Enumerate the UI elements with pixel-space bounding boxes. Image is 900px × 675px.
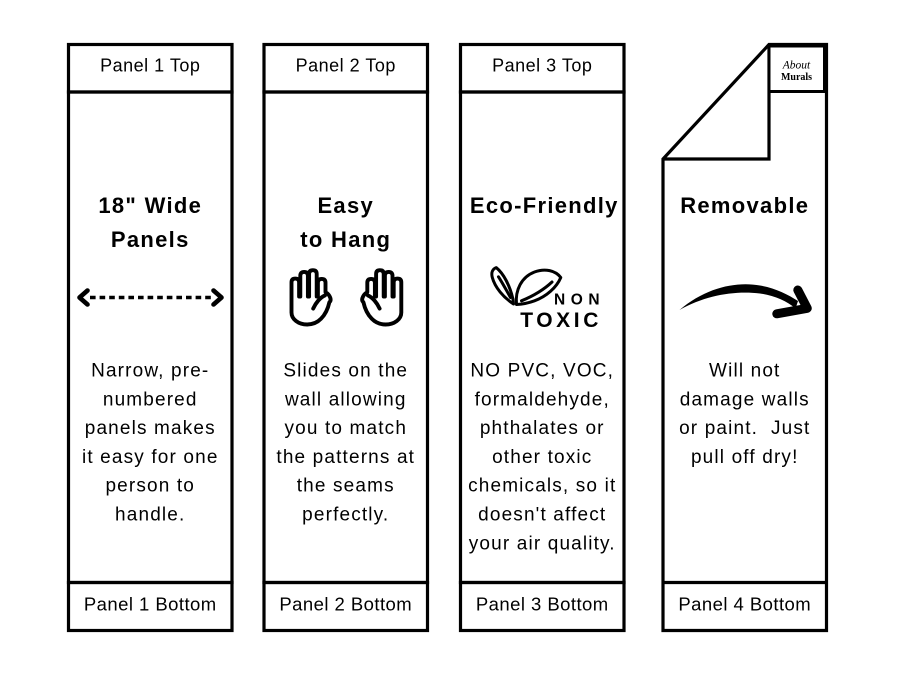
svg-text:Panels: Panels	[111, 227, 190, 252]
svg-text:Panel 1 Top: Panel 1 Top	[100, 56, 200, 76]
svg-text:Panel 3 Bottom: Panel 3 Bottom	[476, 594, 609, 615]
svg-text:you to match: you to match	[284, 418, 407, 439]
svg-text:the patterns at: the patterns at	[276, 447, 415, 468]
svg-text:Panel 1 Bottom: Panel 1 Bottom	[84, 594, 217, 615]
svg-text:perfectly.: perfectly.	[302, 505, 389, 526]
svg-text:Removable: Removable	[680, 193, 809, 218]
svg-text:TOXIC: TOXIC	[520, 309, 602, 332]
svg-text:Eco-Friendly: Eco-Friendly	[470, 193, 619, 218]
svg-text:handle.: handle.	[115, 505, 185, 526]
svg-text:Panel 3 Top: Panel 3 Top	[492, 56, 592, 76]
svg-text:NON: NON	[554, 292, 605, 309]
svg-text:damage walls: damage walls	[680, 389, 810, 410]
svg-text:Slides on the: Slides on the	[283, 361, 408, 382]
svg-text:numbered: numbered	[103, 389, 198, 410]
svg-text:your air quality.: your air quality.	[469, 533, 616, 554]
svg-text:panels makes: panels makes	[85, 418, 216, 439]
svg-text:18" Wide: 18" Wide	[98, 193, 202, 218]
svg-text:About: About	[782, 60, 811, 72]
svg-text:phthalates or: phthalates or	[480, 418, 605, 439]
svg-text:or paint. Just: or paint. Just	[679, 418, 810, 439]
svg-text:Panel 2 Bottom: Panel 2 Bottom	[279, 594, 412, 615]
svg-text:other toxic: other toxic	[492, 447, 592, 468]
svg-text:NO PVC, VOC,: NO PVC, VOC,	[470, 361, 614, 382]
svg-text:chemicals, so it: chemicals, so it	[468, 476, 616, 497]
svg-text:person to: person to	[105, 476, 195, 497]
svg-text:Will not: Will not	[709, 361, 781, 382]
svg-text:to Hang: to Hang	[300, 227, 391, 252]
svg-text:Narrow, pre-: Narrow, pre-	[91, 361, 209, 382]
svg-text:pull off dry!: pull off dry!	[691, 447, 799, 468]
svg-text:formaldehyde,: formaldehyde,	[475, 389, 610, 410]
svg-text:Easy: Easy	[317, 193, 374, 218]
svg-text:doesn't affect: doesn't affect	[478, 505, 606, 526]
svg-text:wall allowing: wall allowing	[284, 389, 407, 410]
svg-text:Panel 2 Top: Panel 2 Top	[296, 56, 396, 76]
svg-text:Panel 4 Bottom: Panel 4 Bottom	[678, 594, 811, 615]
svg-text:Murals: Murals	[781, 72, 812, 83]
svg-text:the seams: the seams	[297, 476, 395, 497]
svg-text:it easy for one: it easy for one	[82, 447, 219, 468]
